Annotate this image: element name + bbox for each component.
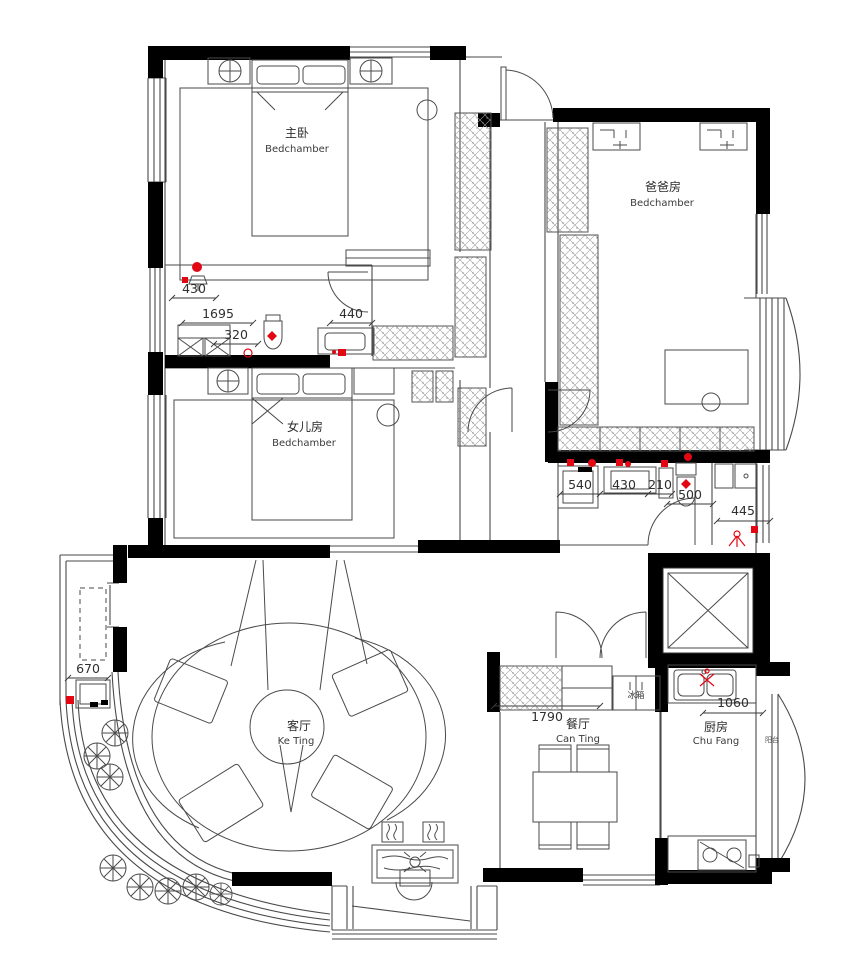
plant-icon: [155, 878, 181, 904]
wall: [232, 872, 332, 886]
wardrobe-dad: [560, 235, 598, 425]
wall: [430, 46, 466, 60]
room-label-master-en: Bedchamber: [265, 144, 330, 155]
wall: [553, 108, 770, 122]
floorplan-drawing: 430 1695 320 440 540 430 210 500 445 670…: [0, 0, 848, 960]
dim-bath1-430: 430: [182, 281, 206, 296]
red-point: [192, 262, 202, 272]
kitchen-sink: [678, 674, 704, 696]
red-point: [684, 453, 692, 461]
window-bath2-right: [757, 465, 769, 543]
room-label-living-en: Ke Ting: [278, 736, 315, 747]
closet: [458, 388, 486, 446]
wall: [756, 858, 790, 872]
room-label-dad: 爸爸房: [645, 179, 681, 194]
plant-icon: [102, 720, 128, 746]
bath2-fixtures: [558, 463, 757, 545]
red-point: [661, 460, 668, 467]
dim-bath2-445: 445: [731, 503, 755, 518]
wall: [418, 540, 560, 553]
window-bath-left: [150, 268, 165, 352]
elevator-shaft: [648, 553, 770, 668]
room-label-master: 主卧: [285, 126, 309, 140]
curved-balcony-rail: [60, 700, 330, 932]
sofa: [311, 754, 394, 830]
balcony-label: 阳台: [765, 735, 779, 744]
wall: [148, 60, 163, 78]
window-master-top: [350, 47, 430, 57]
bay-window-kitchen: [772, 694, 805, 864]
sofa: [154, 658, 229, 724]
ceiling-lamp-icon: [217, 370, 239, 392]
closet: [412, 371, 433, 402]
dim-bath2-210: 210: [648, 477, 672, 492]
room-label-dining-en: Can Ting: [556, 734, 600, 745]
kitchen-faucet-icon: [705, 669, 709, 673]
wall: [548, 450, 756, 463]
wall: [655, 668, 668, 712]
desk: [372, 845, 458, 883]
master-bed: [180, 58, 437, 280]
red-point: [567, 459, 574, 466]
closet: [455, 113, 491, 250]
wall: [113, 627, 127, 672]
plant-icon: [100, 855, 126, 881]
wall: [655, 838, 668, 885]
structural-walls: [113, 46, 790, 886]
window-seat-dad: [558, 427, 754, 451]
wall: [113, 545, 127, 583]
room-label-daughter-en: Bedchamber: [272, 438, 337, 449]
living-floor-curve: [112, 672, 332, 883]
room-label-dining: 餐厅: [566, 716, 590, 731]
entry-counter: [500, 666, 562, 710]
left-balcony: [76, 588, 110, 708]
dim-dining-1790: 1790: [531, 709, 563, 724]
room-label-living: 客厅: [287, 718, 311, 733]
desk-set: [372, 822, 458, 900]
red-point: [588, 459, 596, 467]
room-label-dad-en: Bedchamber: [630, 198, 695, 209]
dim-bath2-500: 500: [678, 487, 702, 502]
wall: [128, 545, 330, 558]
plant-icon: [210, 883, 232, 905]
living-furniture: [133, 560, 446, 851]
plant-icon: [97, 764, 123, 790]
wall: [756, 122, 770, 214]
fridge-label: 冰箱: [627, 690, 645, 701]
wall: [483, 868, 583, 882]
closet: [436, 371, 453, 402]
plant-icon: [183, 874, 209, 900]
hall-double-door: [556, 612, 646, 658]
dim-bath2-540: 540: [568, 477, 592, 492]
red-point: [66, 696, 74, 704]
closet: [455, 257, 486, 357]
window-dad-right: [757, 214, 767, 294]
wall: [148, 182, 163, 268]
sofa: [178, 763, 264, 842]
bay-window-bottom: [332, 886, 497, 939]
room-label-kitchen: 厨房: [704, 719, 728, 734]
red-diamond: [267, 331, 277, 341]
dim-kitchen-1060: 1060: [717, 695, 749, 710]
red-point: [751, 526, 758, 533]
ceiling-lines: [231, 560, 367, 812]
dad-furniture: [593, 123, 748, 411]
red-faucet: [338, 349, 346, 356]
room-label-kitchen-en: Chu Fang: [693, 736, 739, 747]
window-daughter-left: [148, 395, 166, 518]
entry-door-leaf: [501, 67, 506, 120]
sofa: [331, 649, 408, 717]
room-label-daughter: 女儿房: [287, 419, 323, 434]
closet: [373, 326, 453, 360]
shower-icon: [729, 536, 745, 547]
plant-icon: [127, 874, 153, 900]
daughter-bed: [174, 368, 399, 538]
closet: [547, 128, 588, 232]
window-dining-bottom: [583, 875, 660, 885]
window-master-left: [148, 78, 166, 182]
red-point: [332, 350, 336, 354]
dim-bath1-1695: 1695: [202, 306, 234, 321]
red-point: [616, 459, 623, 466]
ceiling-lamp-icon: [360, 60, 382, 82]
wall: [148, 352, 163, 395]
washer-reserved: [80, 588, 106, 660]
entry-door-swing: [506, 70, 553, 118]
wall: [487, 652, 500, 712]
dim-bath2-430: 430: [612, 477, 636, 492]
dim-bath1-320: 320: [224, 327, 248, 342]
bath2-door: [648, 498, 695, 545]
floorplan-canvas: 430 1695 320 440 540 430 210 500 445 670…: [0, 0, 848, 960]
red-point: [625, 461, 631, 467]
wall: [148, 518, 163, 548]
dining-table: [533, 772, 617, 822]
ceiling-lamp-icon: [219, 60, 241, 82]
dim-bath1-440: 440: [339, 306, 363, 321]
dim-balcony-670: 670: [76, 661, 100, 676]
stove-counter: [668, 836, 756, 872]
